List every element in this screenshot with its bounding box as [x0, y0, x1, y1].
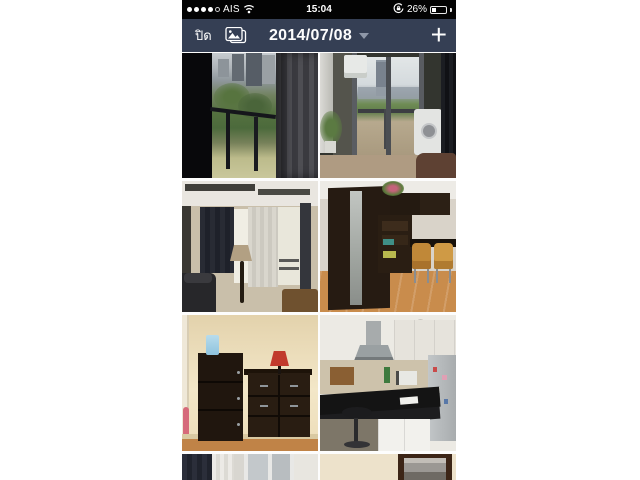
- photo-thumbnail-4[interactable]: [320, 181, 456, 312]
- plant-shape: [320, 111, 342, 145]
- photo-thumbnail-8[interactable]: [320, 454, 456, 480]
- photo-thumbnail-1[interactable]: [182, 53, 318, 178]
- curtain-shape: [182, 454, 212, 480]
- table-shape: [282, 289, 318, 312]
- cabinet-knob-shape: [237, 397, 240, 400]
- status-bar: AIS 15:04 26%: [182, 0, 456, 19]
- bar-stool-base-shape: [344, 441, 370, 448]
- building-shape: [218, 59, 229, 77]
- plant-pot-shape: [325, 141, 336, 153]
- nav-bar: ปิด 2014/07/08 +: [182, 19, 456, 52]
- building-shape: [262, 55, 275, 84]
- railing-shape: [279, 259, 299, 262]
- railing-post-shape: [226, 111, 230, 169]
- date-label: 2014/07/08: [269, 27, 352, 45]
- status-bar-right: 26%: [393, 0, 452, 19]
- orientation-lock-icon: [393, 3, 404, 17]
- sofa-cushion-shape: [184, 273, 212, 283]
- fridge-magnet-shape: [444, 399, 448, 404]
- sofa-shape: [416, 153, 456, 178]
- blue-box-shape: [206, 335, 219, 355]
- sheer-curtain-shape: [248, 207, 278, 287]
- ac-vent-shape: [258, 189, 310, 195]
- red-lamp-shade-shape: [270, 351, 289, 366]
- door-frame-shape: [234, 454, 244, 480]
- lower-cabinets-shape: [378, 419, 430, 451]
- fridge-magnet-shape: [433, 367, 437, 372]
- drawer-seam-shape: [278, 375, 280, 437]
- bottle-shape: [384, 367, 390, 383]
- floor-shape: [320, 155, 420, 178]
- storage-box-shape: [383, 239, 394, 245]
- air-conditioner-shape: [344, 55, 367, 78]
- battery-fill: [432, 8, 436, 12]
- chair-shape: [434, 243, 453, 269]
- chevron-down-icon: [359, 33, 369, 39]
- drawer-handle-shape: [290, 385, 298, 387]
- glass-door-shape: [244, 454, 294, 480]
- flower-vase-shape: [382, 181, 404, 196]
- chair-legs-shape: [414, 269, 429, 283]
- upper-cabinets-shape: [394, 320, 456, 360]
- ac-vent-shape: [185, 184, 255, 191]
- fridge-magnet-shape: [442, 375, 447, 380]
- building-shape: [246, 53, 262, 86]
- window-shape: [278, 207, 300, 285]
- mirror-glass-shape: [404, 458, 446, 480]
- photo-thumbnail-2[interactable]: [320, 53, 456, 178]
- shelf-cubby-shape: [382, 221, 408, 231]
- add-button[interactable]: +: [431, 18, 447, 51]
- bar-stool-seat-shape: [342, 407, 372, 418]
- mirror-shape: [350, 191, 362, 305]
- drawer-handle-shape: [260, 405, 268, 407]
- sheer-curtain-shape: [212, 454, 234, 480]
- range-hood-shape: [354, 345, 394, 361]
- battery-percent-label: 26%: [407, 4, 427, 15]
- floor-lamp-stem-shape: [240, 261, 244, 303]
- storage-box-shape: [383, 251, 396, 258]
- cabinet-knob-shape: [237, 423, 240, 426]
- range-hood-chimney-shape: [366, 321, 381, 345]
- drawer-handle-shape: [260, 385, 268, 387]
- chair-legs-shape: [436, 269, 451, 283]
- cutting-board-shape: [330, 367, 354, 385]
- cabinet-knob-shape: [237, 371, 240, 374]
- photo-thumbnail-5[interactable]: [182, 315, 318, 451]
- microwave-shape: [396, 371, 417, 385]
- curtain-shape: [300, 203, 311, 289]
- curtain-shape: [276, 53, 318, 178]
- photo-thumbnail-3[interactable]: [182, 181, 318, 312]
- lamp-stem-shape: [278, 366, 281, 374]
- battery-icon: [430, 6, 447, 14]
- washing-machine-door-shape: [421, 123, 437, 139]
- chair-shape: [412, 243, 431, 269]
- curtain-shape: [200, 207, 234, 273]
- cabinet-seam-shape: [198, 381, 243, 383]
- drawer-handle-shape: [290, 405, 298, 407]
- cabinet-seam-shape: [198, 409, 243, 411]
- screenshot-canvas: AIS 15:04 26%: [0, 0, 640, 480]
- railing-post-shape: [254, 117, 258, 171]
- door-frame-shape: [386, 57, 391, 155]
- photo-thumbnail-6[interactable]: [320, 315, 456, 451]
- photo-thumbnail-7[interactable]: [182, 454, 318, 480]
- building-shape: [232, 54, 244, 81]
- mirror-shape: [182, 206, 191, 276]
- phone-screen: AIS 15:04 26%: [182, 0, 456, 480]
- date-selector[interactable]: 2014/07/08: [182, 19, 456, 52]
- bar-stool-pole-shape: [354, 417, 358, 444]
- battery-nub: [450, 8, 452, 12]
